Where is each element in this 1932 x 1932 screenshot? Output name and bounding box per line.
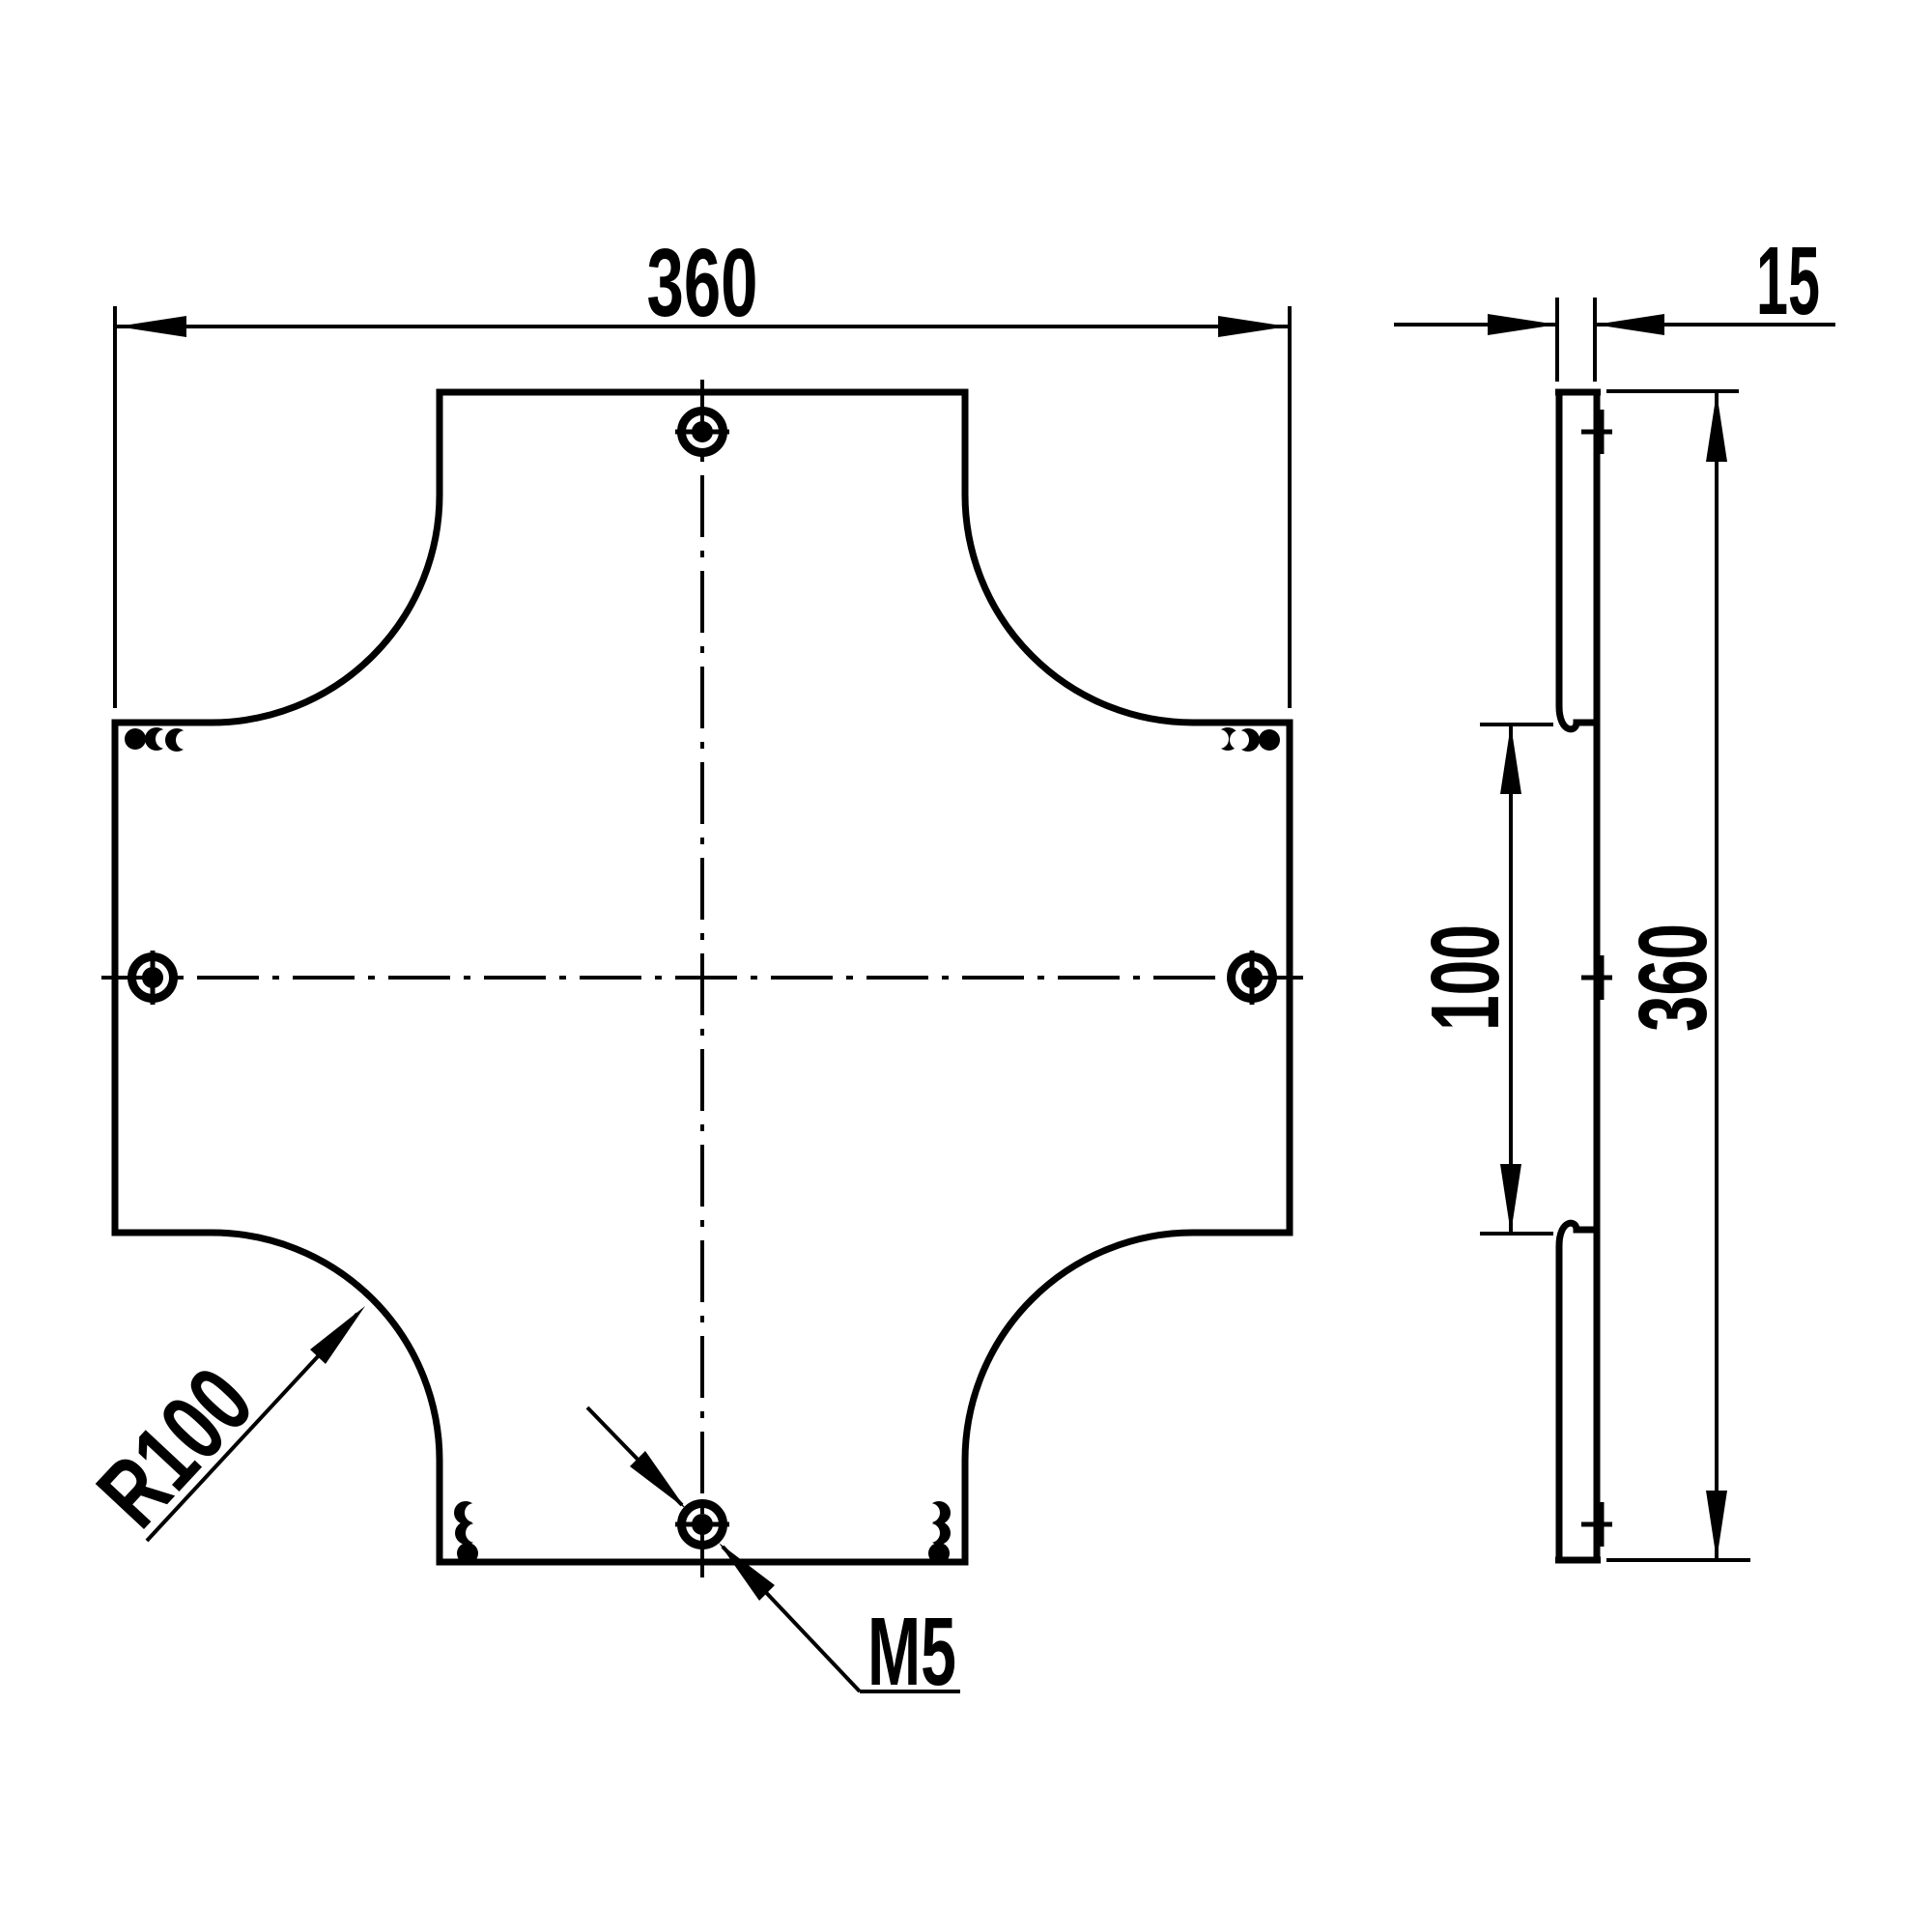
dim-height-label: 360 xyxy=(1619,923,1727,1032)
corner-marks-bottom-right xyxy=(921,1501,951,1564)
dim-width-arrow-left xyxy=(117,316,186,337)
dim-height-arrow-bottom xyxy=(1706,1491,1727,1560)
profile-bottom-flange xyxy=(1559,1223,1595,1559)
drawing-page: 360 R100 M5 xyxy=(0,0,1932,1932)
dim-height-arrow-top xyxy=(1706,392,1727,462)
side-view: 15 100 360 xyxy=(1394,227,1835,1560)
dim-thickness-arrow-right xyxy=(1595,314,1664,335)
corner-marks-top-left xyxy=(125,727,195,752)
radius-callout: R100 xyxy=(77,1306,365,1548)
radius-callout-arrow xyxy=(310,1306,365,1364)
dim-opening: 100 xyxy=(1411,724,1553,1234)
thread-callout-arrow-upper xyxy=(630,1451,686,1509)
dim-thickness-arrow-left xyxy=(1488,314,1557,335)
corner-marks-bottom-left xyxy=(454,1501,485,1564)
dim-height: 360 xyxy=(1606,391,1750,1560)
thread-callout-label: M5 xyxy=(867,1598,956,1706)
dim-thickness: 15 xyxy=(1394,227,1835,382)
thread-callout: M5 xyxy=(587,1407,960,1706)
dim-opening-arrow-bottom xyxy=(1500,1164,1521,1234)
profile-top-flange xyxy=(1559,393,1595,729)
dim-opening-arrow-top xyxy=(1500,724,1521,794)
top-view: 360 R100 M5 xyxy=(77,229,1303,1706)
corner-marks-top-right xyxy=(1209,727,1280,752)
dim-width-label: 360 xyxy=(647,229,758,337)
dim-width: 360 xyxy=(115,229,1290,708)
dim-opening-label: 100 xyxy=(1411,924,1520,1031)
dim-width-arrow-right xyxy=(1218,316,1288,337)
dim-thickness-label: 15 xyxy=(1756,227,1820,335)
thread-callout-arrow-lower xyxy=(719,1543,775,1601)
technical-drawing-canvas: 360 R100 M5 xyxy=(0,0,1932,1932)
radius-callout-label: R100 xyxy=(77,1348,273,1548)
